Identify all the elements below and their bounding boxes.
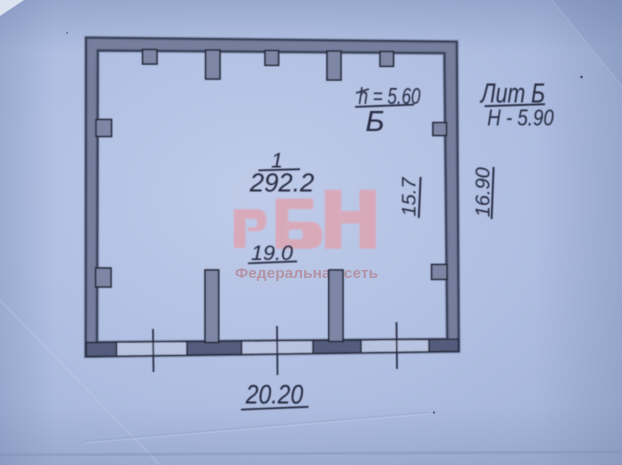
- svg-text:20.20: 20.20: [245, 380, 303, 410]
- svg-text:15.7: 15.7: [399, 176, 421, 216]
- svg-text:Федеральная сеть: Федеральная сеть: [235, 266, 378, 282]
- svg-text:292.2: 292.2: [249, 168, 315, 198]
- svg-text:Н - 5.90: Н - 5.90: [487, 105, 554, 131]
- svg-text:Б: Б: [366, 106, 385, 138]
